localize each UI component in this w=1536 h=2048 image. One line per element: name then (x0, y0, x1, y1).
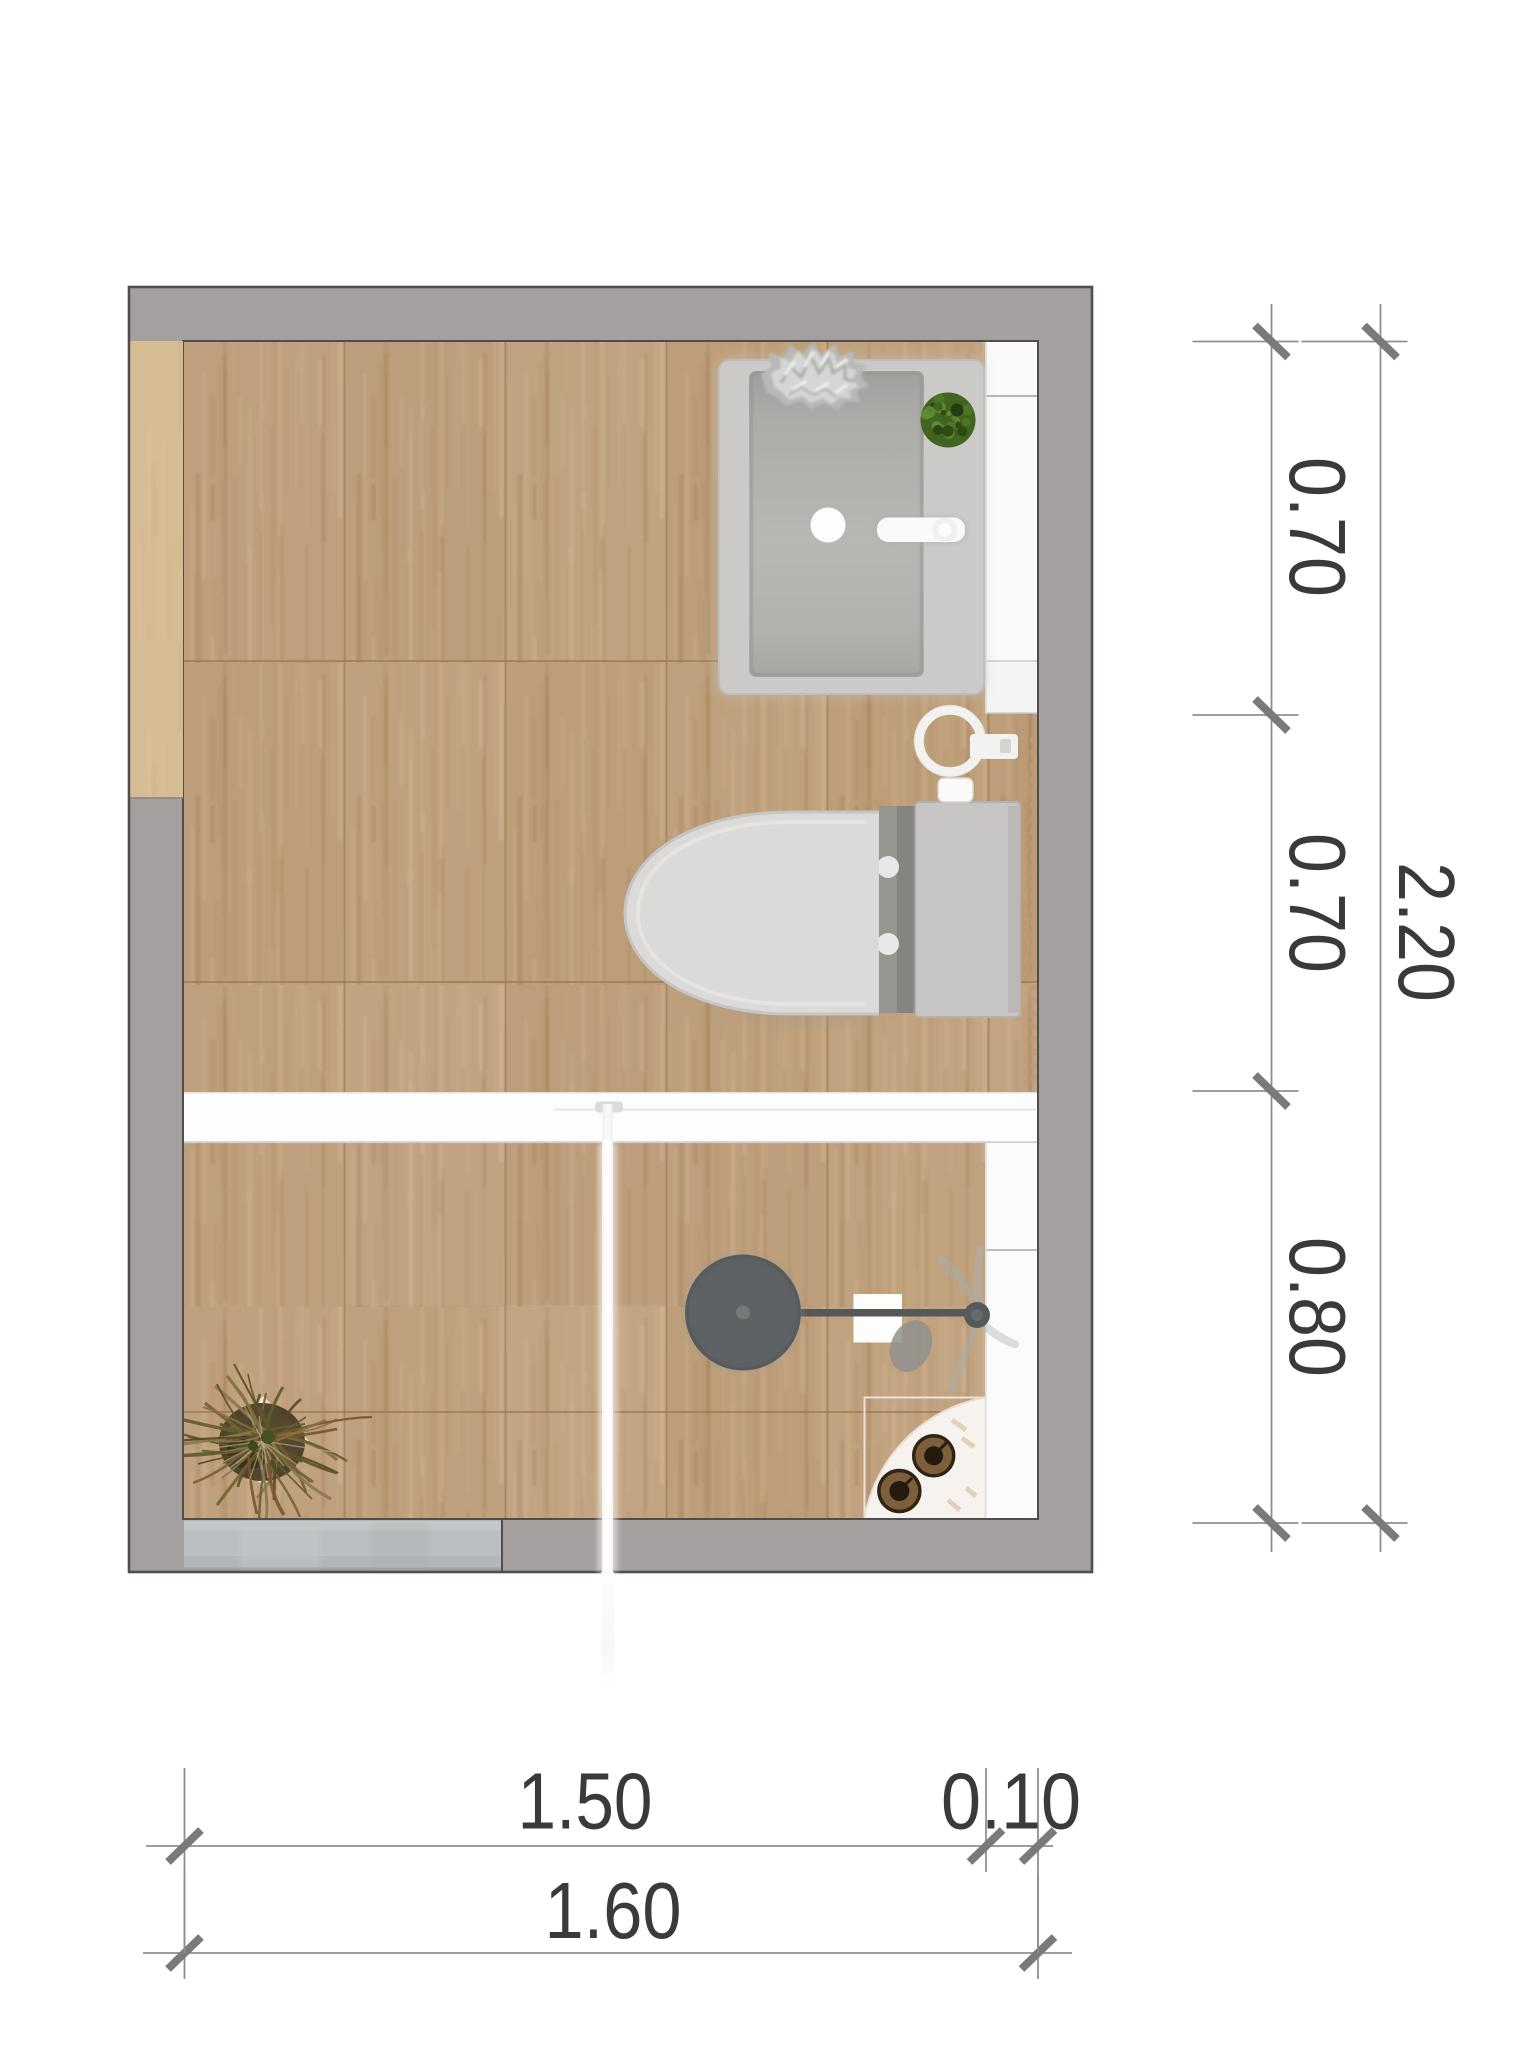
svg-text:0.70: 0.70 (1273, 457, 1362, 597)
svg-text:2.20: 2.20 (1382, 862, 1471, 1002)
svg-text:0.10: 0.10 (941, 1757, 1081, 1846)
svg-text:1.60: 1.60 (545, 1866, 682, 1955)
svg-text:0.70: 0.70 (1273, 833, 1362, 973)
svg-text:0.80: 0.80 (1273, 1237, 1362, 1377)
svg-text:1.50: 1.50 (518, 1757, 653, 1846)
